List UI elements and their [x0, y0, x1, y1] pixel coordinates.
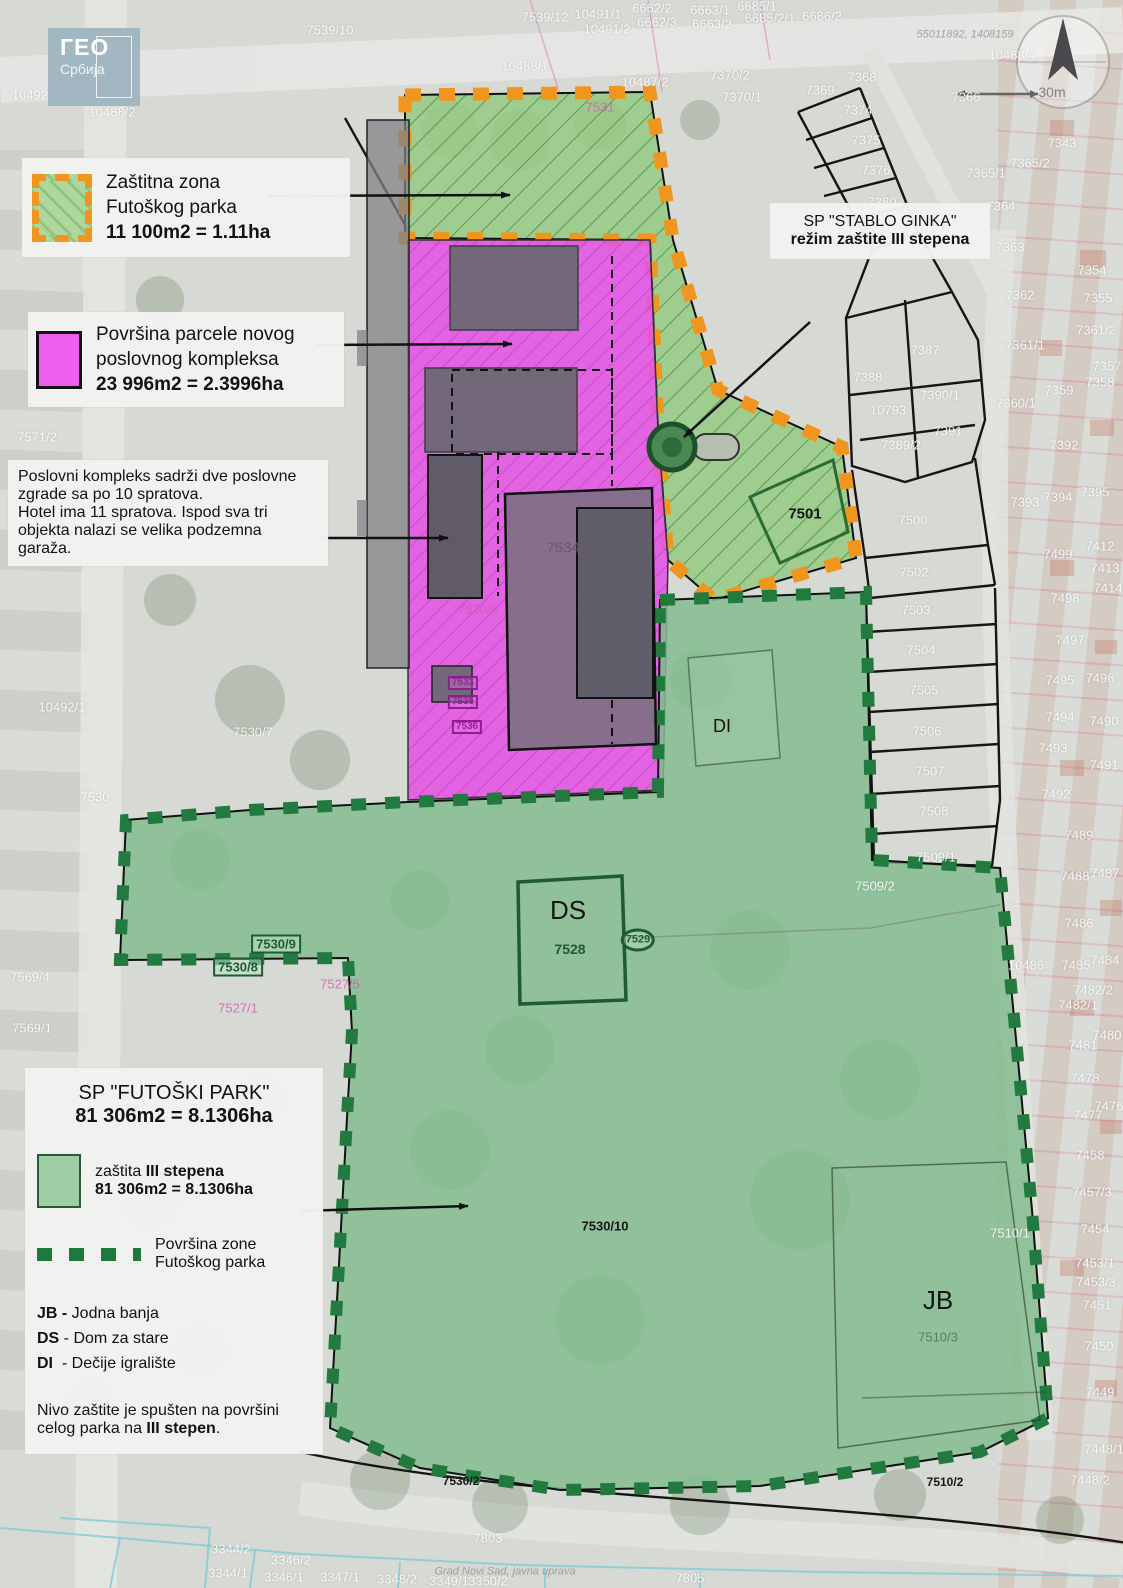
legend-jb: JB - Jodna banja: [37, 1302, 311, 1327]
futoski-note: Nivo zaštite je spušten na površini celo…: [37, 1402, 311, 1438]
parcela-line2: poslovnog kompleksa: [96, 347, 295, 372]
swatch-zastita-iii: [37, 1154, 81, 1208]
zastitna-line2: Futoškog parka: [106, 195, 270, 220]
logo-serbia-shape: [96, 36, 132, 98]
note-suffix: .: [216, 1420, 220, 1437]
callout-povrsina-parcele: Površina parcele novog poslovnog komplek…: [28, 312, 344, 407]
building-central-tower: [577, 508, 653, 698]
note-bold: III stepen: [146, 1420, 215, 1437]
scale-bar: [957, 90, 1038, 98]
zastitna-line1: Zaštitna zona: [106, 170, 270, 195]
zastita-area: 81 306m2 = 8.1306ha: [95, 1181, 253, 1199]
stablo-title: SP "STABLO GINKA": [776, 213, 984, 231]
callout-stablo-ginka: SP "STABLO GINKA" režim zaštite III step…: [770, 203, 990, 259]
swatch-parcela: [36, 331, 82, 389]
playground-di-outline: [688, 650, 780, 766]
legend-di: DI - Dečije igralište: [37, 1352, 311, 1377]
futoski-title: SP "FUTOŠKI PARK": [37, 1082, 311, 1105]
stablo-subtitle: režim zaštite III stepena: [776, 231, 984, 249]
swatch-zastitna-zona: [32, 174, 92, 242]
zone-line2: Futoškog parka: [155, 1254, 265, 1272]
parcela-line1: Površina parcele novog: [96, 322, 295, 347]
callout-zastitna-zona: Zaštitna zona Futoškog parka 11 100m2 = …: [22, 158, 350, 257]
building-mid: [425, 368, 577, 452]
zastitna-area: 11 100m2 = 1.11ha: [106, 220, 270, 245]
roofs-layer: [1040, 120, 1122, 1396]
callout-poslovni-kompleks: Poslovni kompleks sadrži dve poslovne zg…: [8, 460, 328, 566]
futoski-area: 81 306m2 = 8.1306ha: [37, 1105, 311, 1128]
geo-srbija-logo: ГЕО Србија: [48, 28, 140, 106]
access-road-strip: [367, 120, 409, 668]
poslovni-paragraph1: Poslovni kompleks sadrži dve poslovne zg…: [18, 468, 318, 504]
building-north: [450, 246, 578, 330]
poslovni-paragraph2: Hotel ima 11 spratova. Ispod sva tri obj…: [18, 504, 318, 558]
zastita-bold: III stepena: [146, 1163, 224, 1180]
zone-line1: Površina zone: [155, 1236, 265, 1254]
callout-futoski-park: SP "FUTOŠKI PARK" 81 306m2 = 8.1306ha za…: [25, 1068, 323, 1454]
swatch-zone-dash: [37, 1248, 141, 1261]
zastita-prefix: zaštita: [95, 1163, 146, 1180]
arrow-parcela: [315, 344, 512, 345]
legend-ds: DS - Dom za stare: [37, 1327, 311, 1352]
parcela-area: 23 996m2 = 2.3996ha: [96, 372, 295, 397]
map-canvas: 7539/101049210488/27539/1210491/110491/2…: [0, 0, 1123, 1588]
building-hotel: [428, 455, 482, 598]
